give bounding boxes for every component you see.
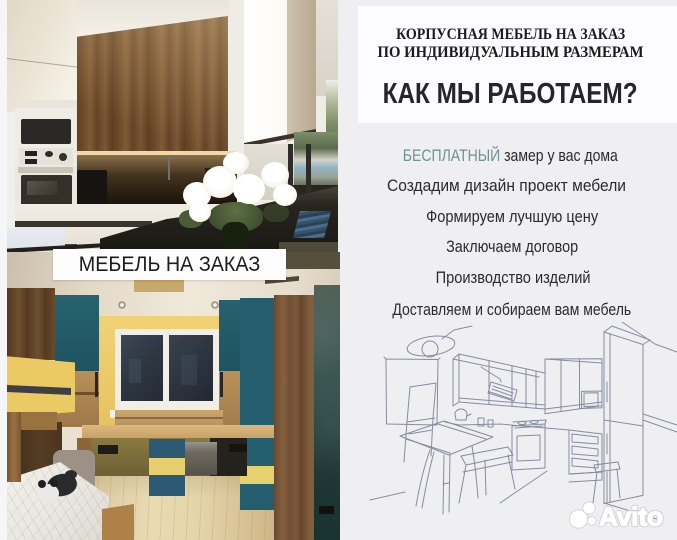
svg-text:Avito: Avito bbox=[599, 502, 663, 532]
